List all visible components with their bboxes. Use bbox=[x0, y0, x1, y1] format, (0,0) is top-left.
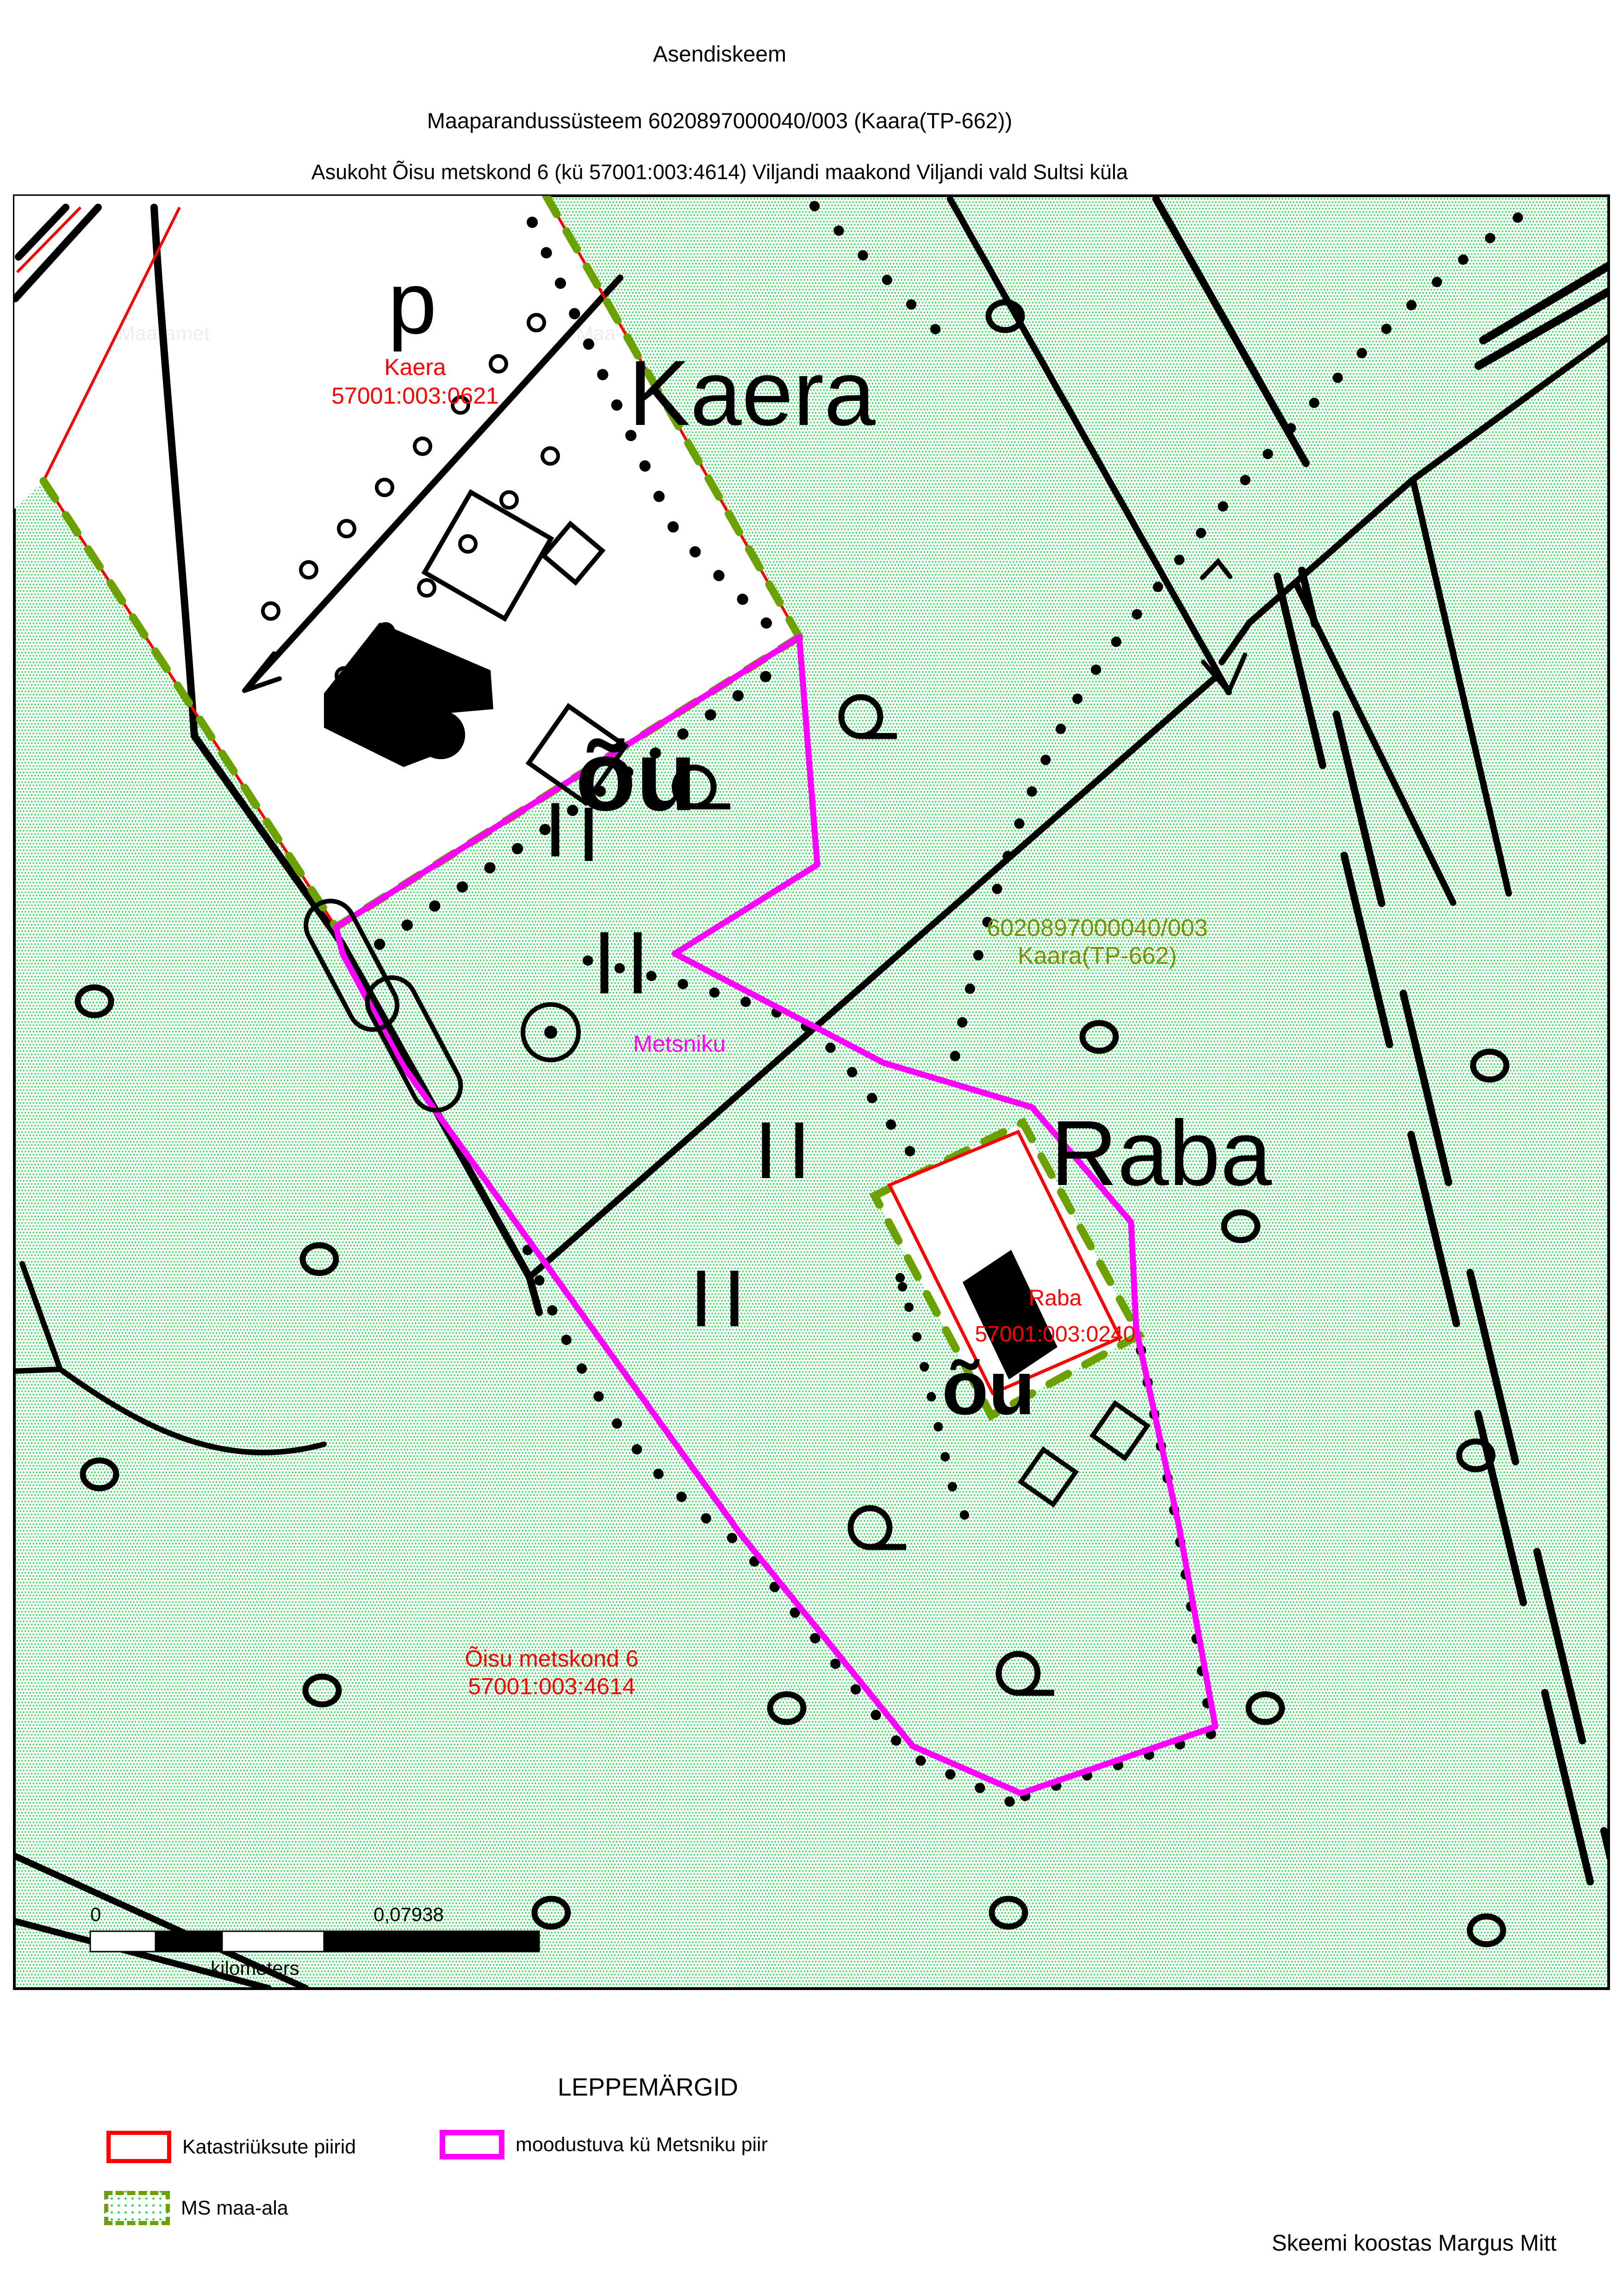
scalebar-segment bbox=[222, 1931, 324, 1952]
author-credit: Skeemi koostas Margus Mitt bbox=[1272, 2230, 1556, 2256]
scalebar-segment bbox=[155, 1931, 222, 1952]
legend-item-ms-area: MS maa-ala bbox=[104, 2191, 288, 2225]
scalebar-units: kilometers bbox=[211, 1957, 299, 1979]
cadastral-label-oisu-code: 57001:003:4614 bbox=[468, 1673, 635, 1699]
system-label-line2: Kaara(TP-662) bbox=[1018, 942, 1177, 969]
green-dashed-swatch-icon bbox=[104, 2191, 170, 2225]
legend-title: LEPPEMÄRGID bbox=[518, 2073, 777, 2102]
map-canvas: Maa-amet Maa-amet Maa-amet Maa-amet Maa-… bbox=[0, 0, 1623, 2296]
legend-item-metsniku: moodustuva kü Metsniku piir bbox=[440, 2130, 768, 2159]
cadastral-label-oisu-name: Õisu metskond 6 bbox=[465, 1646, 638, 1672]
cadastral-label-kaera-code: 57001:003:0621 bbox=[331, 383, 498, 409]
well-icon bbox=[547, 1028, 555, 1036]
legend-item-label: Katastriüksute piirid bbox=[182, 2136, 356, 2159]
scalebar-end: 0,07938 bbox=[373, 1903, 444, 1925]
metsniku-label: Metsniku bbox=[633, 1031, 726, 1057]
magenta-boundary-swatch-icon bbox=[440, 2130, 504, 2159]
cadastral-label-raba-code: 57001:003:0240 bbox=[975, 1322, 1135, 1347]
landuse-label-p: p bbox=[388, 254, 437, 352]
system-label-line1: 6020897000040/003 bbox=[987, 915, 1207, 942]
legend-item-label: moodustuva kü Metsniku piir bbox=[516, 2134, 768, 2156]
scalebar-start: 0 bbox=[90, 1903, 101, 1925]
legend-item-label: MS maa-ala bbox=[181, 2197, 288, 2220]
place-label-raba: Raba bbox=[1051, 1102, 1272, 1205]
legend-item-cadastral: Katastriüksute piirid bbox=[106, 2131, 356, 2163]
red-boundary-swatch-icon bbox=[106, 2131, 171, 2163]
yard-label-kaera: õu bbox=[575, 720, 697, 831]
page: Asendiskeem Maaparandussüsteem 602089700… bbox=[0, 0, 1623, 2296]
cadastral-label-kaera-name: Kaera bbox=[384, 354, 446, 380]
cadastral-label-raba-name: Raba bbox=[1029, 1286, 1082, 1310]
scalebar-segment bbox=[324, 1931, 539, 1952]
watermark-text: Maa-amet bbox=[1319, 1324, 1411, 1347]
scalebar-segment bbox=[90, 1931, 155, 1952]
yard-label-raba: õu bbox=[942, 1345, 1035, 1430]
place-label-kaera: Kaera bbox=[628, 342, 876, 445]
